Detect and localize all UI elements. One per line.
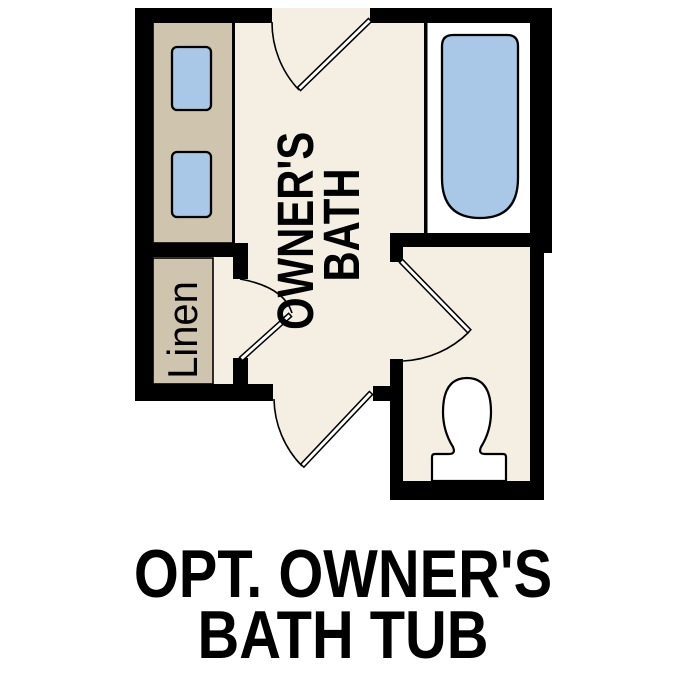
wall-top-left [135, 8, 272, 23]
wall-right-upper [530, 8, 552, 253]
wall-wc-left-lower [390, 359, 403, 489]
wall-bottom-left [135, 384, 273, 401]
wall-linen-jamb-top [233, 255, 248, 279]
bottom-door-swing-wedge [274, 393, 371, 466]
room-name-line2: BATH [313, 168, 370, 281]
sink-top [172, 47, 211, 110]
wall-alcove-bottom [390, 233, 552, 247]
top-door-opening-floor [272, 8, 370, 23]
wc-door-opening-floor [390, 262, 403, 359]
floor-plan-page: OWNER'S BATH Linen OPT. OWNER'S BATH TUB [0, 0, 687, 687]
caption-line2: BATH TUB [197, 598, 488, 673]
wall-right-lower [530, 253, 544, 500]
wall-vanity-divider [135, 243, 248, 257]
wall-bottom-door-jamb [373, 386, 403, 401]
sink-bottom [172, 152, 211, 217]
linen-closet-label: Linen [159, 281, 206, 379]
owners-bath-floor-plan: OWNER'S BATH Linen OPT. OWNER'S BATH TUB [0, 0, 687, 687]
tub-alcove-divider-line [424, 22, 428, 233]
wall-top-right [370, 8, 552, 23]
bathtub [442, 35, 518, 218]
wall-wc-left-upper [390, 244, 403, 262]
wall-wc-bottom [390, 481, 544, 500]
wall-linen-jamb-bottom [233, 358, 248, 390]
vanity-counter-edge [232, 22, 235, 243]
wall-left [135, 8, 153, 401]
